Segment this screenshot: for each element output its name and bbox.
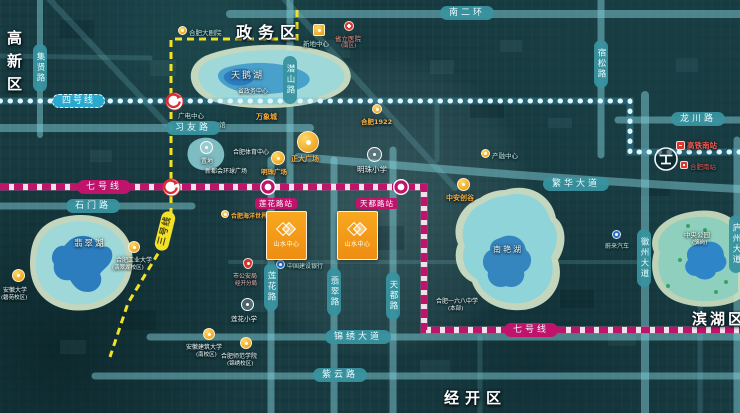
- road-pill-susonglu: 宿松路: [594, 40, 608, 88]
- building-icon: [481, 149, 490, 158]
- metro-station-label-lianhua: 莲花路站: [255, 198, 297, 209]
- road-pill-jixianlu: 集贤路: [33, 44, 47, 92]
- road-pill-tiandulu: 天都路: [386, 272, 400, 320]
- mall-icon: [372, 104, 382, 114]
- poi-wanxiangcheng: 万象城: [256, 112, 277, 122]
- district-label-binhu: 滨湖区: [692, 308, 740, 329]
- school-icon: [241, 298, 254, 311]
- project-name: 山水中心: [344, 239, 370, 248]
- metro-logo-icon: [162, 178, 181, 197]
- road-pill-nanerhuan: 南二环: [440, 6, 494, 20]
- university-icon: [12, 269, 25, 282]
- metro-line4-pill: 四号线: [52, 94, 105, 108]
- landmark-icon: [200, 141, 213, 154]
- lake-label-feicuihu: 翡翠湖: [74, 237, 106, 249]
- poi-anda-sub: (磬苑校区): [1, 293, 27, 301]
- district-label-jingkai: 经开区: [444, 387, 507, 408]
- poi-gonganju-sub: 经开分局: [235, 279, 257, 287]
- poi-lianhuaxiaoxue: 莲花小学: [231, 313, 257, 323]
- road-pill-shimenlu: 石门路: [66, 199, 120, 213]
- project-block-1: 山水中心: [266, 211, 307, 260]
- road-pill-feicuilu: 翡翠路: [327, 268, 341, 316]
- road-pill-qianshanlu: 潜山路: [283, 56, 297, 104]
- poi-dajuyuan: 合肥大剧院: [189, 27, 222, 37]
- district-label-gaoxin: 高新区: [4, 30, 25, 99]
- poi-mingzhuxiaoxue: 明珠小学: [357, 164, 387, 175]
- project-logo-icon: [278, 223, 295, 235]
- lake-label-nanyanhu: 南艳湖: [493, 244, 523, 255]
- aquarium-icon: [221, 210, 229, 218]
- train-icon: [680, 161, 688, 169]
- university-icon: [203, 328, 215, 340]
- road-pill-luzhoudadao: 庐州大道: [729, 215, 740, 273]
- tech-park-icon: [457, 178, 470, 191]
- poi-xinduhui: 新都会环球广场: [205, 166, 247, 175]
- poi-hefei1922: 合肥1922: [361, 116, 392, 126]
- railway-emblem-icon: [653, 146, 679, 172]
- poi-weilai: 蔚来汽车: [605, 241, 629, 250]
- poi-tiyu: 合肥体育中心: [233, 147, 269, 156]
- poi-shifan-sub: (锦绣校区): [227, 359, 253, 367]
- road-pill-xiyoulu: 习友路: [166, 121, 220, 135]
- district-label-zhengwu: 政务区: [236, 19, 302, 43]
- poi-zhengwu-center: 省政务中心: [238, 86, 268, 95]
- road-pill-fanhuadadao: 繁华大道: [543, 177, 609, 191]
- poi-zhengda: 正大广场: [291, 154, 319, 164]
- metro-line7-pill-left: 七号线: [77, 180, 131, 194]
- metro-logo-icon: [165, 92, 184, 111]
- poi-zhonganchuanggu: 中安创谷: [446, 193, 474, 203]
- university-icon: [240, 337, 252, 349]
- poi-anjianda-sub: (南校区): [196, 350, 217, 358]
- metro-line7-pill-right: 七号线: [504, 323, 558, 337]
- poi-hefeinanzhan: 合肥南站: [690, 161, 716, 171]
- metro-station-ring-tiandu: [393, 179, 409, 195]
- metro-station-label-tiandu: 天都路站: [356, 198, 398, 209]
- university-icon: [128, 241, 140, 253]
- poi-xindizhongxin: 新地中心: [303, 38, 329, 48]
- train-icon: [676, 141, 685, 150]
- road-pill-huizhoudadao: 徽州大道: [637, 229, 651, 287]
- road-pill-lianhualu: 莲花路: [264, 263, 278, 311]
- road-pill-longchuanlu: 龙川路: [671, 112, 725, 126]
- park-zhongyang-shape: [652, 210, 740, 306]
- satellite-metro-map: 高新区 政务区 滨湖区 经开区 集贤路 习友路 潜山路 南二环 宿松路 龙川路 …: [0, 0, 740, 413]
- project-logo-icon: [349, 223, 366, 235]
- poi-shengliyiyuan-sub: (南区): [341, 41, 356, 49]
- project-name: 山水中心: [273, 239, 299, 248]
- poi-jianhang: 中国建设银行: [287, 261, 323, 270]
- project-block-2: 山水中心: [337, 211, 378, 260]
- poi-zhidi: 置地: [201, 156, 213, 165]
- poi-mingzhuguangchang: 明珠广场: [261, 166, 287, 176]
- lake-label-tianehu: 天鹅湖: [231, 68, 264, 81]
- metro-station-ring-lianhua: [260, 179, 276, 195]
- theater-icon: [178, 26, 187, 35]
- poi-gaotienanzhan: 高铁南站: [687, 140, 717, 151]
- road-pill-jinxiudadao: 锦绣大道: [325, 330, 391, 344]
- road-pill-ziyunlu: 紫云路: [313, 368, 367, 382]
- poi-gongda-sub: (翡翠湖校区): [112, 263, 144, 271]
- mall-icon: [271, 151, 285, 165]
- school-icon: [367, 147, 382, 162]
- building-icon: [313, 24, 325, 36]
- hospital-icon: [344, 21, 354, 31]
- factory-icon: [612, 230, 621, 239]
- poi-haiyang: 合肥海洋世界: [231, 211, 267, 220]
- poi-zhongyanggongyuan-sub: (骆岗): [692, 238, 707, 246]
- poi-chanrong: 产融中心: [492, 150, 518, 160]
- mall-icon: [297, 131, 319, 153]
- poi-yiliuba-sub: (本部): [448, 304, 463, 312]
